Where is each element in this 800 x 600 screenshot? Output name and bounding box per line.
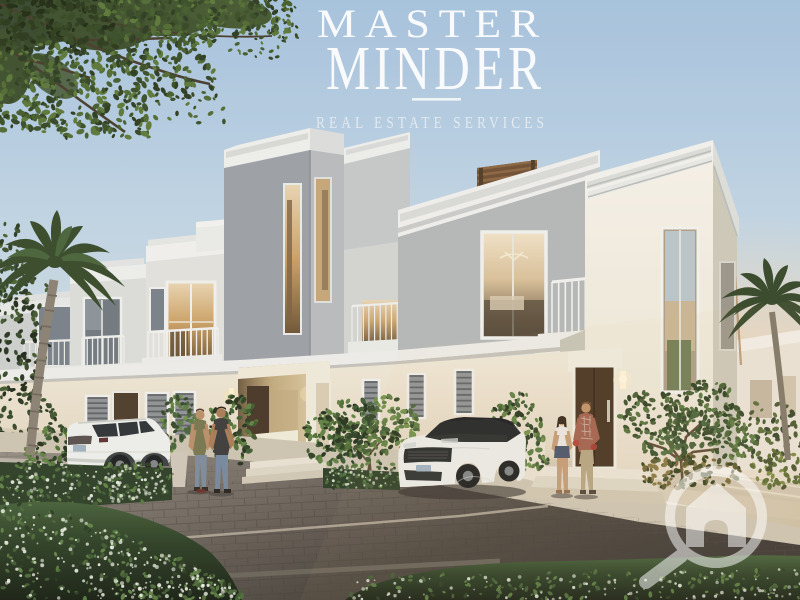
svg-text:REAL ESTATE SERVICES: REAL ESTATE SERVICES [316, 113, 548, 132]
svg-text:MINDER: MINDER [326, 35, 545, 103]
